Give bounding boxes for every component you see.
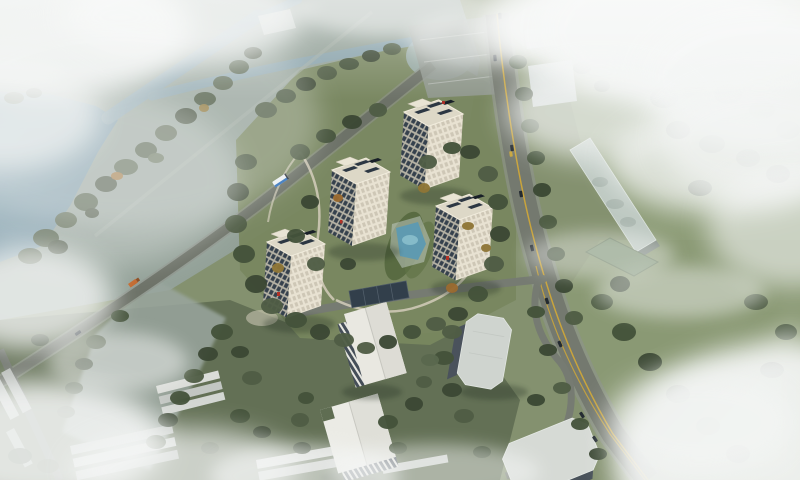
tree — [421, 354, 439, 366]
tree — [571, 418, 589, 430]
tree — [272, 263, 284, 273]
tree — [379, 335, 397, 349]
tree — [301, 195, 319, 209]
tree — [158, 413, 178, 427]
tree — [426, 317, 446, 331]
tree — [418, 183, 430, 193]
tree — [233, 245, 255, 263]
tree — [478, 166, 498, 182]
tree — [287, 229, 305, 243]
tree — [316, 129, 336, 143]
tree — [231, 346, 249, 358]
tree — [369, 103, 387, 117]
tree — [638, 353, 662, 371]
tree — [443, 142, 461, 154]
tree — [565, 311, 583, 325]
tree — [454, 409, 474, 423]
tree — [245, 275, 267, 293]
tree — [225, 215, 247, 233]
tree — [403, 325, 421, 339]
tree — [481, 244, 491, 252]
tree — [533, 183, 551, 197]
tree — [261, 298, 283, 314]
tree — [468, 286, 488, 302]
building-shadow — [342, 384, 402, 400]
render-canvas — [0, 0, 800, 480]
tree — [307, 257, 325, 271]
tree — [484, 256, 504, 272]
tree — [446, 283, 458, 293]
tree — [419, 155, 437, 169]
tree — [448, 307, 468, 321]
tree — [342, 115, 362, 129]
tree — [539, 215, 557, 229]
tree — [405, 397, 423, 411]
aerial-render — [0, 0, 800, 480]
tree — [462, 222, 474, 230]
residential-tower-east — [432, 193, 493, 280]
tree — [211, 324, 233, 340]
tree — [333, 194, 343, 202]
tree — [340, 258, 356, 270]
tower-shadow — [328, 243, 400, 261]
tree — [253, 426, 271, 438]
tree — [170, 391, 190, 405]
tree — [442, 383, 462, 397]
top-haze — [0, 0, 800, 100]
tree — [298, 392, 314, 404]
cloud — [605, 370, 795, 474]
tree — [442, 325, 462, 339]
tree — [490, 226, 510, 242]
pool-highlight — [402, 235, 418, 245]
tree — [198, 347, 218, 361]
tree — [357, 342, 375, 354]
tree — [111, 310, 129, 322]
tree — [553, 382, 571, 394]
tree — [334, 333, 354, 347]
tree — [242, 371, 262, 385]
tree — [555, 279, 573, 293]
tree — [378, 415, 398, 429]
tree — [539, 344, 557, 356]
tree — [285, 312, 307, 328]
tree — [527, 306, 545, 318]
tower-shadow — [431, 279, 501, 297]
tree — [310, 324, 330, 340]
tree — [612, 323, 636, 341]
tree — [488, 194, 508, 210]
tree — [291, 413, 309, 427]
cloud — [595, 266, 765, 318]
tree — [230, 409, 250, 423]
tree — [589, 448, 607, 460]
tree — [416, 376, 432, 388]
tree — [527, 394, 545, 406]
tree — [184, 369, 204, 383]
tree — [460, 145, 480, 159]
tree — [527, 151, 545, 165]
